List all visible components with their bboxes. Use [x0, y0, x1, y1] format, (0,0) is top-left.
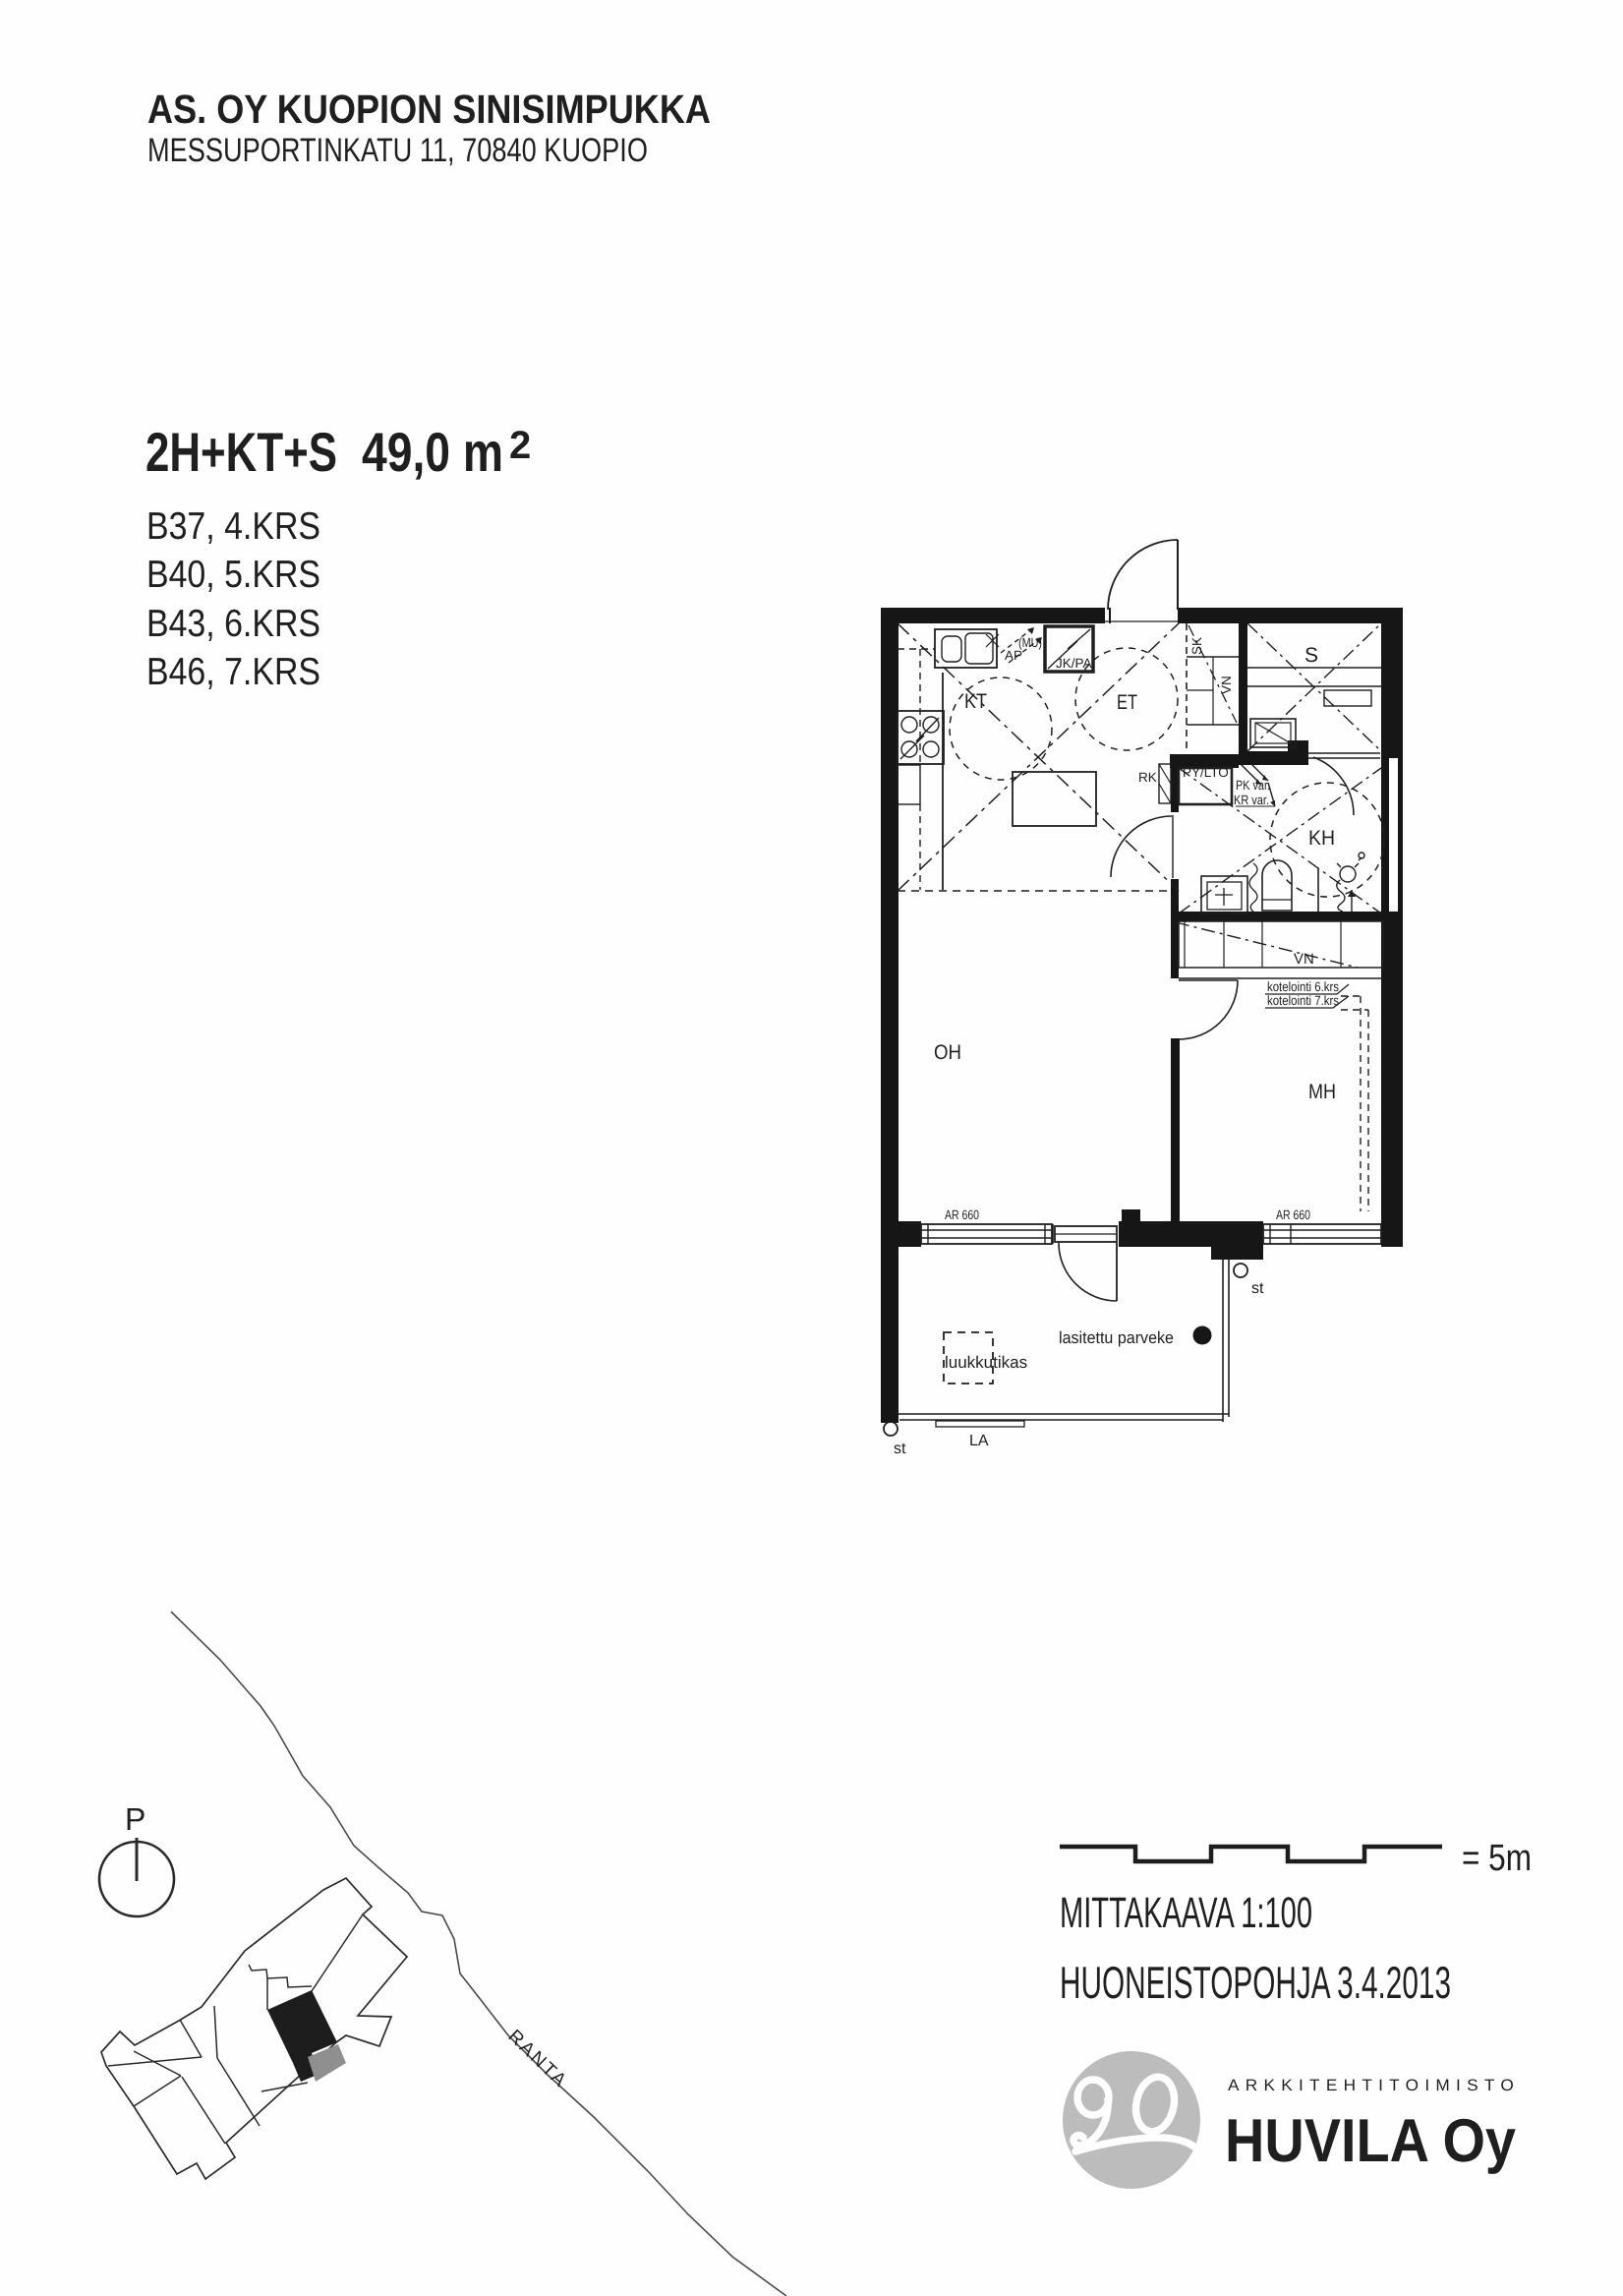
svg-text:AS. OY KUOPION SINISIMPUKKA: AS. OY KUOPION SINISIMPUKKA	[147, 87, 711, 132]
svg-text:MH: MH	[1308, 1081, 1336, 1103]
svg-text:RANTA: RANTA	[504, 2026, 572, 2092]
svg-text:HUONEISTOPOHJA 3.4.2013: HUONEISTOPOHJA 3.4.2013	[1060, 1957, 1451, 2008]
svg-text:KT: KT	[964, 690, 987, 713]
svg-text:= 5m: = 5m	[1462, 1838, 1532, 1879]
svg-text:2: 2	[509, 424, 531, 467]
svg-text:PY/LTO: PY/LTO	[1183, 765, 1229, 780]
svg-text:RK: RK	[1138, 770, 1157, 785]
svg-text:SK: SK	[1189, 637, 1204, 655]
svg-text:P: P	[125, 1801, 145, 1837]
svg-text:B40, 5.KRS: B40, 5.KRS	[146, 554, 320, 596]
svg-text:MITTAKAAVA 1:100: MITTAKAAVA 1:100	[1060, 1889, 1312, 1937]
svg-text:B43, 6.KRS: B43, 6.KRS	[146, 603, 320, 645]
svg-text:VN: VN	[1219, 676, 1234, 694]
svg-text:st: st	[1251, 1280, 1264, 1297]
svg-text:AR 660: AR 660	[945, 1207, 979, 1222]
svg-text:PK var.: PK var.	[1236, 778, 1270, 793]
svg-text:kotelointi 6.krs: kotelointi 6.krs	[1267, 979, 1339, 994]
svg-text:MESSUPORTINKATU 11, 70840 KUOP: MESSUPORTINKATU 11, 70840 KUOPIO	[147, 132, 648, 169]
svg-text:st: st	[894, 1441, 906, 1457]
svg-text:JK/PA: JK/PA	[1056, 656, 1092, 671]
svg-text:kotelointi 7.krs: kotelointi 7.krs	[1267, 993, 1339, 1008]
svg-text:AR 660: AR 660	[1276, 1207, 1310, 1222]
svg-text:HUVILA Oy: HUVILA Oy	[1225, 2107, 1516, 2175]
svg-text:AP: AP	[1005, 648, 1022, 663]
svg-text:S: S	[1304, 644, 1318, 667]
svg-text:ARKKITEHTITOIMISTO: ARKKITEHTITOIMISTO	[1228, 2077, 1520, 2094]
svg-text:VN: VN	[1294, 951, 1314, 968]
svg-text:LA: LA	[969, 1433, 989, 1449]
svg-text:ET: ET	[1117, 691, 1137, 714]
svg-text:49,0 m: 49,0 m	[362, 421, 503, 483]
svg-text:KH: KH	[1308, 827, 1335, 850]
svg-text:luukkutikas: luukkutikas	[945, 1353, 1027, 1372]
svg-text:lasitettu parveke: lasitettu parveke	[1059, 1328, 1174, 1347]
svg-text:B37, 4.KRS: B37, 4.KRS	[146, 505, 320, 548]
svg-text:2H+KT+S: 2H+KT+S	[145, 421, 337, 483]
svg-text:KR var.: KR var.	[1234, 793, 1269, 807]
svg-text:OH: OH	[934, 1041, 961, 1064]
svg-text:B46, 7.KRS: B46, 7.KRS	[146, 651, 320, 693]
